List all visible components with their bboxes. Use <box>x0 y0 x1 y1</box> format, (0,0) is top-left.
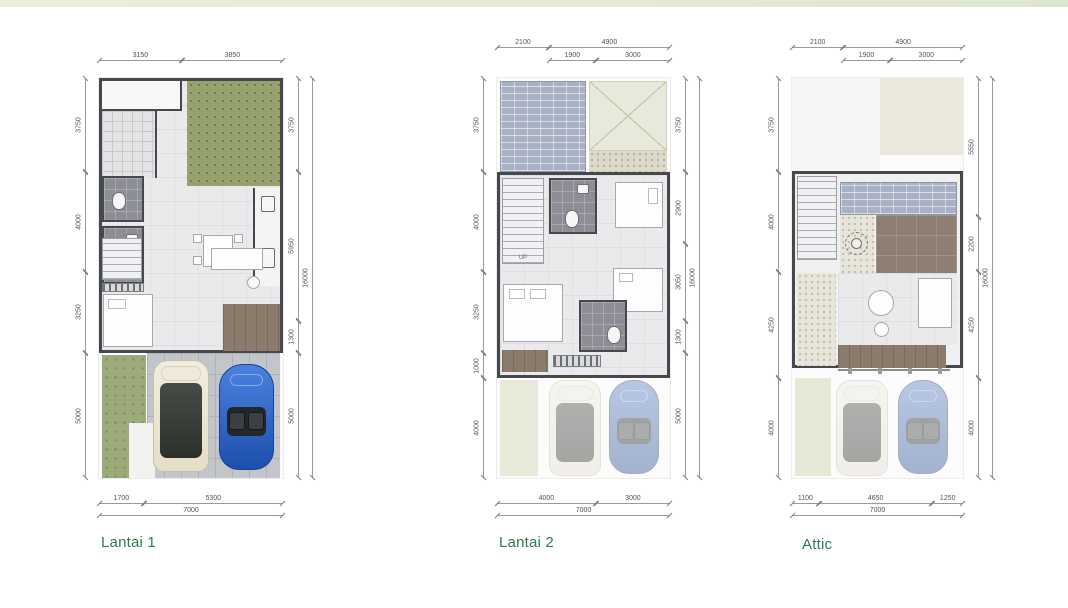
dim-label: 3750 <box>676 117 683 133</box>
floor-plan-lantai-1: 31503850 170053007000 3750400032505000 3… <box>99 78 283 478</box>
car-seat <box>618 422 634 440</box>
car-hood <box>230 374 263 386</box>
fridge-icon <box>261 248 275 268</box>
dim-segment: 1900 <box>843 48 889 61</box>
dimensions-left: 3750400032505000 <box>73 78 85 478</box>
balcony-deck <box>502 350 548 372</box>
dim-label: 3750 <box>76 117 83 133</box>
car-hood <box>161 366 201 381</box>
car-sports-blue <box>219 364 274 470</box>
car-seat <box>634 422 650 440</box>
dim-tick <box>696 475 702 481</box>
car-hood <box>844 386 880 401</box>
dim-label: 5950 <box>289 238 296 254</box>
dimensions-left: 3750400042504000 <box>766 78 778 478</box>
dim-segment: 2100 <box>792 35 843 48</box>
dim-segment: 4000 <box>471 172 484 272</box>
car-suv-ghost <box>549 380 601 476</box>
dim-tick <box>97 57 103 63</box>
car-sports-ghost <box>898 380 948 474</box>
roof-tiles-strip <box>840 182 957 215</box>
dim-segment: 5000 <box>286 353 299 478</box>
dim-tick <box>82 76 88 82</box>
dim-segment: 3050 <box>673 244 686 320</box>
wardrobe <box>102 283 144 292</box>
dim-segment: 4900 <box>843 35 963 48</box>
dim-segment: 5000 <box>673 353 686 478</box>
dim-segment: 1300 <box>286 321 299 354</box>
dim-label: 2100 <box>792 39 843 46</box>
dim-segment: 3750 <box>73 78 86 172</box>
pillow-icon <box>530 289 546 299</box>
bed <box>103 294 153 347</box>
dim-label: 4000 <box>769 214 776 230</box>
dim-label: 1300 <box>676 329 683 345</box>
pillow-icon <box>619 273 633 282</box>
dimensions-right-total: 16000 <box>980 78 992 478</box>
dim-label: 4900 <box>549 39 670 46</box>
dim-label: 1900 <box>549 52 596 59</box>
car-roof-glass <box>556 403 594 462</box>
bed-master <box>503 284 563 342</box>
staircase <box>797 176 837 260</box>
dim-label: 3250 <box>474 305 481 321</box>
garden-courtyard <box>187 81 280 186</box>
dim-segment: 2200 <box>966 217 979 272</box>
dim-segment: 3750 <box>766 78 779 172</box>
dim-tick <box>309 76 315 82</box>
round-table <box>868 290 894 316</box>
dim-label: 2200 <box>969 236 976 252</box>
dim-label: 4000 <box>769 420 776 436</box>
car-suv-ghost <box>836 380 888 476</box>
lounge-chair-icon <box>247 276 260 289</box>
sink-icon <box>577 184 589 194</box>
dim-segment: 7000 <box>792 503 963 516</box>
toilet-icon <box>607 326 621 344</box>
dim-segment: 3250 <box>73 272 86 353</box>
dim-label: 5000 <box>76 408 83 424</box>
car-suv-cream <box>153 360 209 472</box>
dim-segment: 16000 <box>687 78 700 478</box>
terrazzo-side <box>797 273 836 366</box>
dim-segment: 4000 <box>73 172 86 272</box>
walkway <box>129 423 155 478</box>
dim-label: 4000 <box>474 420 481 436</box>
dim-label: 7000 <box>497 507 670 514</box>
dim-label: 4000 <box>497 495 596 502</box>
railing-post <box>878 368 882 374</box>
dim-label: 1700 <box>99 495 144 502</box>
dim-segment: 16000 <box>980 78 993 478</box>
dim-segment: 4000 <box>471 378 484 478</box>
dim-label: 4650 <box>819 495 933 502</box>
dim-segment: 1900 <box>549 48 596 61</box>
bed <box>615 182 663 228</box>
dim-tick <box>696 76 702 82</box>
roof-area-cream <box>880 78 963 155</box>
dim-tick <box>790 512 796 518</box>
bathroom-1 <box>102 176 144 222</box>
dim-label: 7000 <box>792 507 963 514</box>
car-sports-ghost <box>609 380 659 474</box>
sofa <box>918 278 952 328</box>
terrace-deck <box>223 304 280 351</box>
chair-icon <box>193 256 202 265</box>
railing-post <box>848 368 852 374</box>
dim-segment: 4250 <box>766 272 779 378</box>
staircase: UP <box>502 178 544 264</box>
dim-label: 4000 <box>76 214 83 230</box>
stairs-up-label: UP <box>519 255 527 261</box>
dim-label: 3000 <box>596 52 670 59</box>
dim-tick <box>82 475 88 481</box>
dim-tick <box>97 512 103 518</box>
dim-label: 3750 <box>474 117 481 133</box>
dim-label: 4000 <box>969 420 976 436</box>
dim-label: 4250 <box>969 317 976 333</box>
dim-label: 7000 <box>99 507 283 514</box>
gravel-strip <box>589 151 667 172</box>
dim-label: 16000 <box>983 268 990 287</box>
dim-tick <box>480 76 486 82</box>
open-roof-area <box>792 78 880 171</box>
roof-tiles <box>500 81 586 172</box>
dim-tick <box>775 76 781 82</box>
garden-below <box>795 378 831 476</box>
car-hood <box>557 386 593 401</box>
dim-label: 2100 <box>497 39 549 46</box>
page-canvas: 31503850 170053007000 3750400032505000 3… <box>0 0 1068 608</box>
service-room <box>102 81 182 111</box>
dim-tick <box>841 57 847 63</box>
top-accent-band <box>0 0 1068 7</box>
dim-tick <box>790 44 796 50</box>
dim-label: 16000 <box>690 268 697 287</box>
car-roof-glass <box>160 383 202 458</box>
dim-segment: 5000 <box>73 353 86 478</box>
floor-plate <box>99 78 283 478</box>
dim-segment: 4000 <box>766 172 779 272</box>
staircase <box>102 238 142 280</box>
dim-tick <box>480 475 486 481</box>
dim-label: 2900 <box>676 200 683 216</box>
floor-plate <box>792 78 963 478</box>
dim-segment: 4250 <box>966 272 979 378</box>
garden-below <box>500 380 538 476</box>
dim-label: 1900 <box>843 52 889 59</box>
plan-title-lantai-1: Lantai 1 <box>101 534 156 551</box>
dim-label: 3150 <box>99 52 182 59</box>
car-hood <box>620 390 648 402</box>
brown-tile-roof <box>876 215 957 273</box>
toilet-icon <box>565 210 579 228</box>
dim-segment: 5950 <box>286 172 299 321</box>
dimensions-right: 3750595013005000 <box>286 78 298 478</box>
dim-segment: 4000 <box>966 378 979 478</box>
dim-label: 1250 <box>932 495 963 502</box>
dim-segment: 3150 <box>99 48 182 61</box>
kitchen-counter <box>253 188 280 286</box>
dim-label: 5300 <box>144 495 283 502</box>
dim-segment: 2100 <box>497 35 549 48</box>
dim-label: 1100 <box>792 495 819 502</box>
dimensions-right-total: 16000 <box>300 78 312 478</box>
patio-tiles <box>102 111 157 178</box>
terrazzo-patch <box>840 215 874 273</box>
railing-post <box>908 368 912 374</box>
floor-plan-lantai-2: 2100490019003000 400030007000 3750400032… <box>497 78 670 478</box>
dimensions-right: 37502900305013005000 <box>673 78 685 478</box>
floor-plan-attic: 2100490019003000 1100465012507000 375040… <box>792 78 963 478</box>
dim-tick <box>547 57 553 63</box>
dim-tick <box>775 475 781 481</box>
pillow-icon <box>509 289 525 299</box>
dim-label: 3750 <box>289 117 296 133</box>
dim-segment: 1000 <box>471 353 484 378</box>
dim-label: 4000 <box>474 214 481 230</box>
plan-title-attic: Attic <box>802 536 832 553</box>
dim-segment: 1300 <box>673 321 686 354</box>
chair-icon <box>193 234 202 243</box>
sofa <box>211 248 263 270</box>
bathroom <box>549 178 597 234</box>
dim-label: 5550 <box>969 140 976 156</box>
dimensions-right: 5550220042504000 <box>966 78 978 478</box>
dim-tick <box>309 475 315 481</box>
car-seat <box>248 412 264 430</box>
beanbag-icon <box>874 322 889 337</box>
floor-plate: UP <box>497 78 670 478</box>
pillow-icon <box>648 188 658 204</box>
railing-post <box>938 368 942 374</box>
dim-tick <box>989 76 995 82</box>
dim-label: 1300 <box>289 329 296 345</box>
attic-deck <box>838 345 946 368</box>
dim-label: 16000 <box>303 268 310 287</box>
dimensions-right-total: 16000 <box>687 78 699 478</box>
dim-segment: 2900 <box>673 172 686 245</box>
dim-segment: 3750 <box>286 78 299 172</box>
dim-label: 4900 <box>843 39 963 46</box>
wardrobe <box>553 355 601 367</box>
car-seat <box>229 412 245 430</box>
dim-segment: 3000 <box>596 48 670 61</box>
dim-segment: 7000 <box>497 503 670 516</box>
dim-segment: 7000 <box>99 503 283 516</box>
plan-title-lantai-2: Lantai 2 <box>499 534 554 551</box>
dim-segment: 3250 <box>471 272 484 353</box>
railing <box>838 369 950 371</box>
dim-segment: 3850 <box>182 48 283 61</box>
skylight-void <box>589 81 667 151</box>
car-seat <box>923 422 939 440</box>
dim-tick <box>480 351 486 357</box>
dim-segment: 3750 <box>471 78 484 172</box>
dim-tick <box>480 376 486 382</box>
dim-segment: 4900 <box>549 35 670 48</box>
dim-label: 1000 <box>474 358 481 374</box>
dim-tick <box>495 512 501 518</box>
dim-label: 4250 <box>769 317 776 333</box>
dim-tick <box>989 475 995 481</box>
toilet-icon <box>112 192 126 210</box>
dim-segment: 3750 <box>673 78 686 172</box>
dim-tick <box>775 376 781 382</box>
dim-label: 5000 <box>676 408 683 424</box>
dim-segment: 4000 <box>766 378 779 478</box>
dim-label: 5000 <box>289 408 296 424</box>
dim-segment: 3000 <box>890 48 963 61</box>
pillow-icon <box>108 299 126 309</box>
spiral-center-icon <box>851 238 862 249</box>
stove-icon <box>261 196 275 212</box>
car-roof-glass <box>843 403 881 462</box>
bathroom-2 <box>579 300 627 352</box>
dim-label: 3850 <box>182 52 283 59</box>
dim-tick <box>82 351 88 357</box>
car-hood <box>909 390 937 402</box>
dim-label: 3750 <box>769 117 776 133</box>
dim-label: 3000 <box>596 495 670 502</box>
dimensions-left: 37504000325010004000 <box>471 78 483 478</box>
car-seat <box>907 422 923 440</box>
dim-segment: 16000 <box>300 78 313 478</box>
dim-segment: 5550 <box>966 78 979 217</box>
dim-label: 3000 <box>890 52 963 59</box>
chair-icon <box>234 234 243 243</box>
dim-label: 3050 <box>676 275 683 291</box>
dim-label: 3250 <box>76 305 83 321</box>
dim-tick <box>495 44 501 50</box>
